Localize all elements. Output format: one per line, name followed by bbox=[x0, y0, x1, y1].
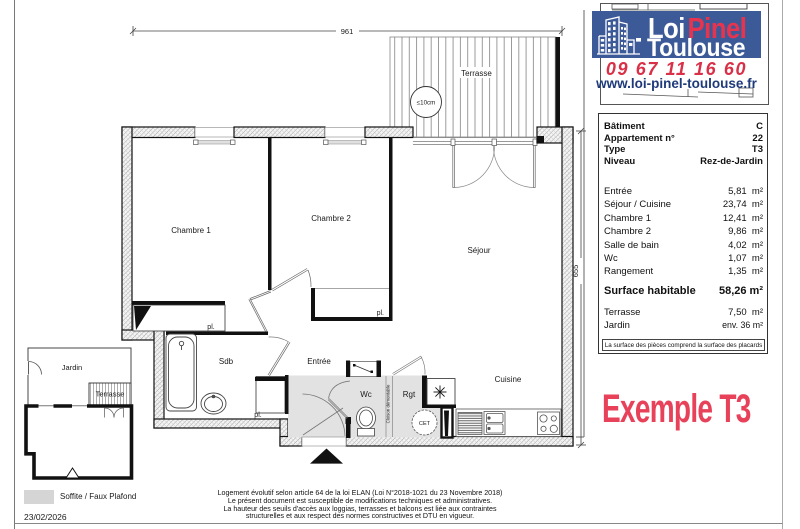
svg-text:CET: CET bbox=[419, 421, 431, 427]
svg-text:≤10cm: ≤10cm bbox=[417, 100, 436, 107]
svg-text:Cloison démontable: Cloison démontable bbox=[386, 384, 391, 423]
svg-text:Rgt: Rgt bbox=[403, 390, 416, 399]
svg-text:Terrasse: Terrasse bbox=[96, 390, 125, 399]
svg-text:23/02/2026: 23/02/2026 bbox=[24, 512, 67, 522]
svg-text:Cuisine: Cuisine bbox=[495, 375, 522, 384]
svg-text:Wc: Wc bbox=[360, 390, 372, 399]
svg-text:Chambre 2: Chambre 2 bbox=[311, 214, 351, 223]
svg-text:pl.: pl. bbox=[377, 310, 384, 317]
svg-text:pl.: pl. bbox=[254, 412, 261, 419]
svg-text:Sdb: Sdb bbox=[219, 357, 234, 366]
svg-text:Entrée: Entrée bbox=[307, 357, 331, 366]
svg-text:961: 961 bbox=[341, 27, 354, 36]
svg-text:Chambre 1: Chambre 1 bbox=[171, 226, 211, 235]
svg-text:Terrasse: Terrasse bbox=[461, 69, 492, 78]
svg-text:pl.: pl. bbox=[207, 324, 214, 331]
svg-text:Jardin: Jardin bbox=[62, 363, 82, 372]
svg-text:Séjour: Séjour bbox=[467, 246, 490, 255]
